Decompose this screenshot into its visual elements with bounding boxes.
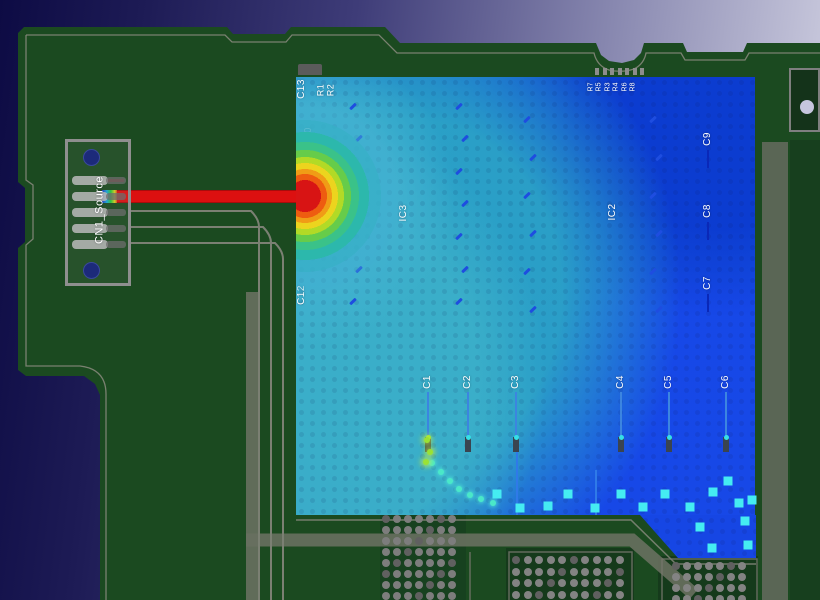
via-dot xyxy=(694,595,702,600)
hot-spot-dot xyxy=(423,459,429,465)
current-x-mark xyxy=(591,504,600,513)
via-dot xyxy=(426,526,434,534)
mounting-hole xyxy=(800,100,814,114)
edge-mount-pad[interactable] xyxy=(789,68,820,132)
via-dot xyxy=(415,515,423,523)
via-dot xyxy=(727,573,735,581)
via-dot xyxy=(558,591,566,599)
via-dot xyxy=(570,556,578,564)
via-dot xyxy=(426,515,434,523)
via-dot xyxy=(581,556,589,564)
current-x-mark xyxy=(724,477,733,486)
refdes-label[interactable]: C13 xyxy=(297,79,307,99)
cap-trace xyxy=(725,392,727,437)
via-dot xyxy=(415,548,423,556)
current-x-mark xyxy=(741,517,750,526)
via-dot xyxy=(524,556,532,564)
via-dot xyxy=(716,584,724,592)
connector-pin-tail xyxy=(106,241,126,248)
via-dot xyxy=(448,592,456,600)
via-dot xyxy=(672,573,680,581)
via-dot xyxy=(415,570,423,578)
via-dot xyxy=(547,579,555,587)
refdes-label[interactable]: C6 xyxy=(721,375,731,389)
via-dot xyxy=(547,568,555,576)
via-dot xyxy=(426,559,434,567)
refdes-label[interactable]: IC2 xyxy=(608,203,618,220)
via-dot xyxy=(524,591,532,599)
current-x-mark xyxy=(708,544,717,553)
cap-via-dot xyxy=(724,435,729,440)
plane-zone xyxy=(790,140,820,600)
via-dot xyxy=(593,568,601,576)
cap-trace xyxy=(620,392,622,437)
via-dot xyxy=(524,568,532,576)
resistor-pad xyxy=(640,68,644,75)
via-dot xyxy=(393,537,401,545)
via-dot xyxy=(382,537,390,545)
refdes-label[interactable]: C11 xyxy=(304,214,314,233)
via-dot xyxy=(616,556,624,564)
via-dot xyxy=(672,562,680,570)
via-dot xyxy=(393,559,401,567)
refdes-label[interactable]: R7 xyxy=(588,83,595,92)
refdes-label[interactable]: C5 xyxy=(664,375,674,389)
via-dot xyxy=(738,595,746,600)
via-dot xyxy=(393,592,401,600)
cap-via-dot xyxy=(667,435,672,440)
cap-trace xyxy=(467,392,469,437)
via-dot xyxy=(437,526,445,534)
refdes-label[interactable]: R6 xyxy=(621,83,628,92)
refdes-label[interactable]: R1 xyxy=(317,84,326,97)
hot-via xyxy=(467,492,473,498)
connector-pin-tail xyxy=(106,209,126,216)
via-dot xyxy=(437,537,445,545)
refdes-label[interactable]: C4 xyxy=(616,375,626,389)
via-dot xyxy=(404,592,412,600)
via-dot xyxy=(426,537,434,545)
via-dot xyxy=(382,548,390,556)
via-dot xyxy=(683,562,691,570)
hot-via xyxy=(438,469,444,475)
via-dot xyxy=(382,515,390,523)
current-x-mark xyxy=(686,503,695,512)
cap-trace xyxy=(427,392,429,437)
current-x-mark xyxy=(735,499,744,508)
current-x-mark xyxy=(709,488,718,497)
source-power-trace[interactable] xyxy=(117,190,307,203)
via-dot xyxy=(382,559,390,567)
via-dot xyxy=(437,570,445,578)
cap-via-dot xyxy=(619,435,624,440)
refdes-label[interactable]: C7 xyxy=(703,276,713,290)
via-dot xyxy=(683,595,691,600)
hot-via xyxy=(429,460,435,466)
via-dot xyxy=(705,573,713,581)
via-dot xyxy=(547,591,555,599)
via-dot xyxy=(547,556,555,564)
connector-pin-tail xyxy=(106,225,126,232)
refdes-label[interactable]: R8 xyxy=(630,83,637,92)
via-dot xyxy=(581,579,589,587)
via-dot xyxy=(570,591,578,599)
via-dot xyxy=(426,592,434,600)
via-dot xyxy=(404,537,412,545)
refdes-label[interactable]: C9 xyxy=(703,132,713,146)
via-dot xyxy=(683,584,691,592)
hot-via xyxy=(456,486,462,492)
via-dot xyxy=(694,562,702,570)
cap-trace xyxy=(668,392,670,437)
connector-pin-tail xyxy=(106,177,126,184)
hot-via xyxy=(447,478,453,484)
cap-trace xyxy=(707,222,709,240)
via-dot xyxy=(512,556,520,564)
cap-via-dot xyxy=(466,435,471,440)
via-dot xyxy=(437,581,445,589)
via-dot xyxy=(604,579,612,587)
via-dot xyxy=(437,548,445,556)
current-x-mark xyxy=(639,503,648,512)
refdes-label[interactable]: C2 xyxy=(463,375,473,389)
via-dot xyxy=(738,584,746,592)
via-dot xyxy=(604,591,612,599)
via-dot xyxy=(404,559,412,567)
via-dot xyxy=(672,595,680,600)
refdes-label[interactable]: R2 xyxy=(327,84,336,97)
via-dot xyxy=(415,592,423,600)
via-dot xyxy=(738,562,746,570)
via-dot xyxy=(448,515,456,523)
via-dot xyxy=(581,568,589,576)
current-x-mark xyxy=(661,490,670,499)
via-dot xyxy=(426,570,434,578)
via-dot xyxy=(727,595,735,600)
via-dot xyxy=(604,556,612,564)
hot-via xyxy=(478,496,484,502)
via-dot xyxy=(535,556,543,564)
via-dot xyxy=(448,537,456,545)
via-dot xyxy=(512,591,520,599)
via-dot xyxy=(705,562,713,570)
resistor-pad xyxy=(610,68,614,75)
via-dot xyxy=(404,526,412,534)
via-dot xyxy=(581,591,589,599)
via-dot xyxy=(382,526,390,534)
via-dot xyxy=(716,595,724,600)
hot-spot-dot xyxy=(424,437,430,443)
via-dot xyxy=(415,526,423,534)
hot-via xyxy=(490,500,496,506)
via-dot xyxy=(393,581,401,589)
current-density-heatmap[interactable] xyxy=(296,77,755,515)
via-dot xyxy=(535,591,543,599)
via-dot xyxy=(738,573,746,581)
via-dot xyxy=(705,595,713,600)
resistor-pad xyxy=(625,68,629,75)
via-dot xyxy=(393,515,401,523)
via-dot xyxy=(415,559,423,567)
via-dot xyxy=(558,568,566,576)
current-x-mark xyxy=(696,523,705,532)
via-dot xyxy=(404,570,412,578)
via-dot xyxy=(616,579,624,587)
via-dot xyxy=(570,579,578,587)
via-dot xyxy=(727,584,735,592)
via-dot xyxy=(558,579,566,587)
resistor-pad xyxy=(618,68,622,75)
via-dot xyxy=(616,568,624,576)
current-x-mark xyxy=(516,504,525,513)
via-dot xyxy=(382,592,390,600)
via-dot xyxy=(393,570,401,578)
via-dot xyxy=(604,568,612,576)
current-x-mark xyxy=(493,490,502,499)
current-x-mark xyxy=(748,496,757,505)
via-dot xyxy=(393,548,401,556)
via-dot xyxy=(716,562,724,570)
via-dot xyxy=(535,568,543,576)
current-x-mark xyxy=(617,490,626,499)
via-dot xyxy=(512,579,520,587)
cap-trace xyxy=(515,392,517,437)
via-dot xyxy=(683,573,691,581)
via-dot xyxy=(382,581,390,589)
via-dot xyxy=(426,581,434,589)
current-x-mark xyxy=(744,541,753,550)
via-dot xyxy=(512,568,520,576)
refdes-label[interactable]: R5 xyxy=(596,83,603,92)
via-dot xyxy=(448,526,456,534)
via-dot xyxy=(535,579,543,587)
via-dot xyxy=(694,584,702,592)
connector-label[interactable]: CN1_Source xyxy=(95,176,106,244)
via-dot xyxy=(705,584,713,592)
refdes-label[interactable]: IC3 xyxy=(399,204,409,221)
via-dot xyxy=(404,548,412,556)
cap-via-dot xyxy=(514,435,519,440)
via-dot xyxy=(404,581,412,589)
via-dot xyxy=(448,548,456,556)
via-dot xyxy=(616,591,624,599)
via-dot xyxy=(448,559,456,567)
refdes-label[interactable]: R3 xyxy=(604,83,611,92)
component-body-c13[interactable] xyxy=(298,64,322,75)
connector-hole xyxy=(83,149,100,166)
via-dot xyxy=(448,581,456,589)
via-dot xyxy=(393,526,401,534)
refdes-label[interactable]: C12 xyxy=(297,285,307,305)
refdes-label[interactable]: C10 xyxy=(304,127,314,147)
via-dot xyxy=(727,562,735,570)
cap-trace xyxy=(707,294,709,312)
refdes-label[interactable]: C3 xyxy=(511,375,521,389)
refdes-label[interactable]: C8 xyxy=(703,204,713,218)
via-dot xyxy=(558,556,566,564)
resistor-pad xyxy=(603,68,607,75)
cap-trace xyxy=(707,150,709,168)
via-dot xyxy=(437,515,445,523)
via-dot xyxy=(524,579,532,587)
refdes-label[interactable]: R4 xyxy=(613,83,620,92)
connector-pin-tail xyxy=(106,193,126,200)
via-dot xyxy=(426,548,434,556)
via-dot xyxy=(404,515,412,523)
via-dot xyxy=(593,591,601,599)
via-dot xyxy=(570,568,578,576)
resistor-pad xyxy=(595,68,599,75)
current-x-mark xyxy=(544,502,553,511)
via-dot xyxy=(415,581,423,589)
via-dot xyxy=(437,592,445,600)
current-x-mark xyxy=(564,490,573,499)
via-dot xyxy=(382,570,390,578)
via-dot xyxy=(448,570,456,578)
connector-hole xyxy=(83,262,100,279)
via-dot xyxy=(415,537,423,545)
pcb-canvas[interactable]: C13R1R2C10C11C12IC3IC2C9C8C7C1C2C3C4C5C6… xyxy=(0,0,820,600)
resistor-pad xyxy=(633,68,637,75)
via-dot xyxy=(672,584,680,592)
refdes-label[interactable]: C1 xyxy=(423,375,433,389)
via-dot xyxy=(716,573,724,581)
via-dot xyxy=(593,579,601,587)
via-dot xyxy=(593,556,601,564)
via-dot xyxy=(694,573,702,581)
via-dot xyxy=(437,559,445,567)
hot-spot-dot xyxy=(427,449,433,455)
